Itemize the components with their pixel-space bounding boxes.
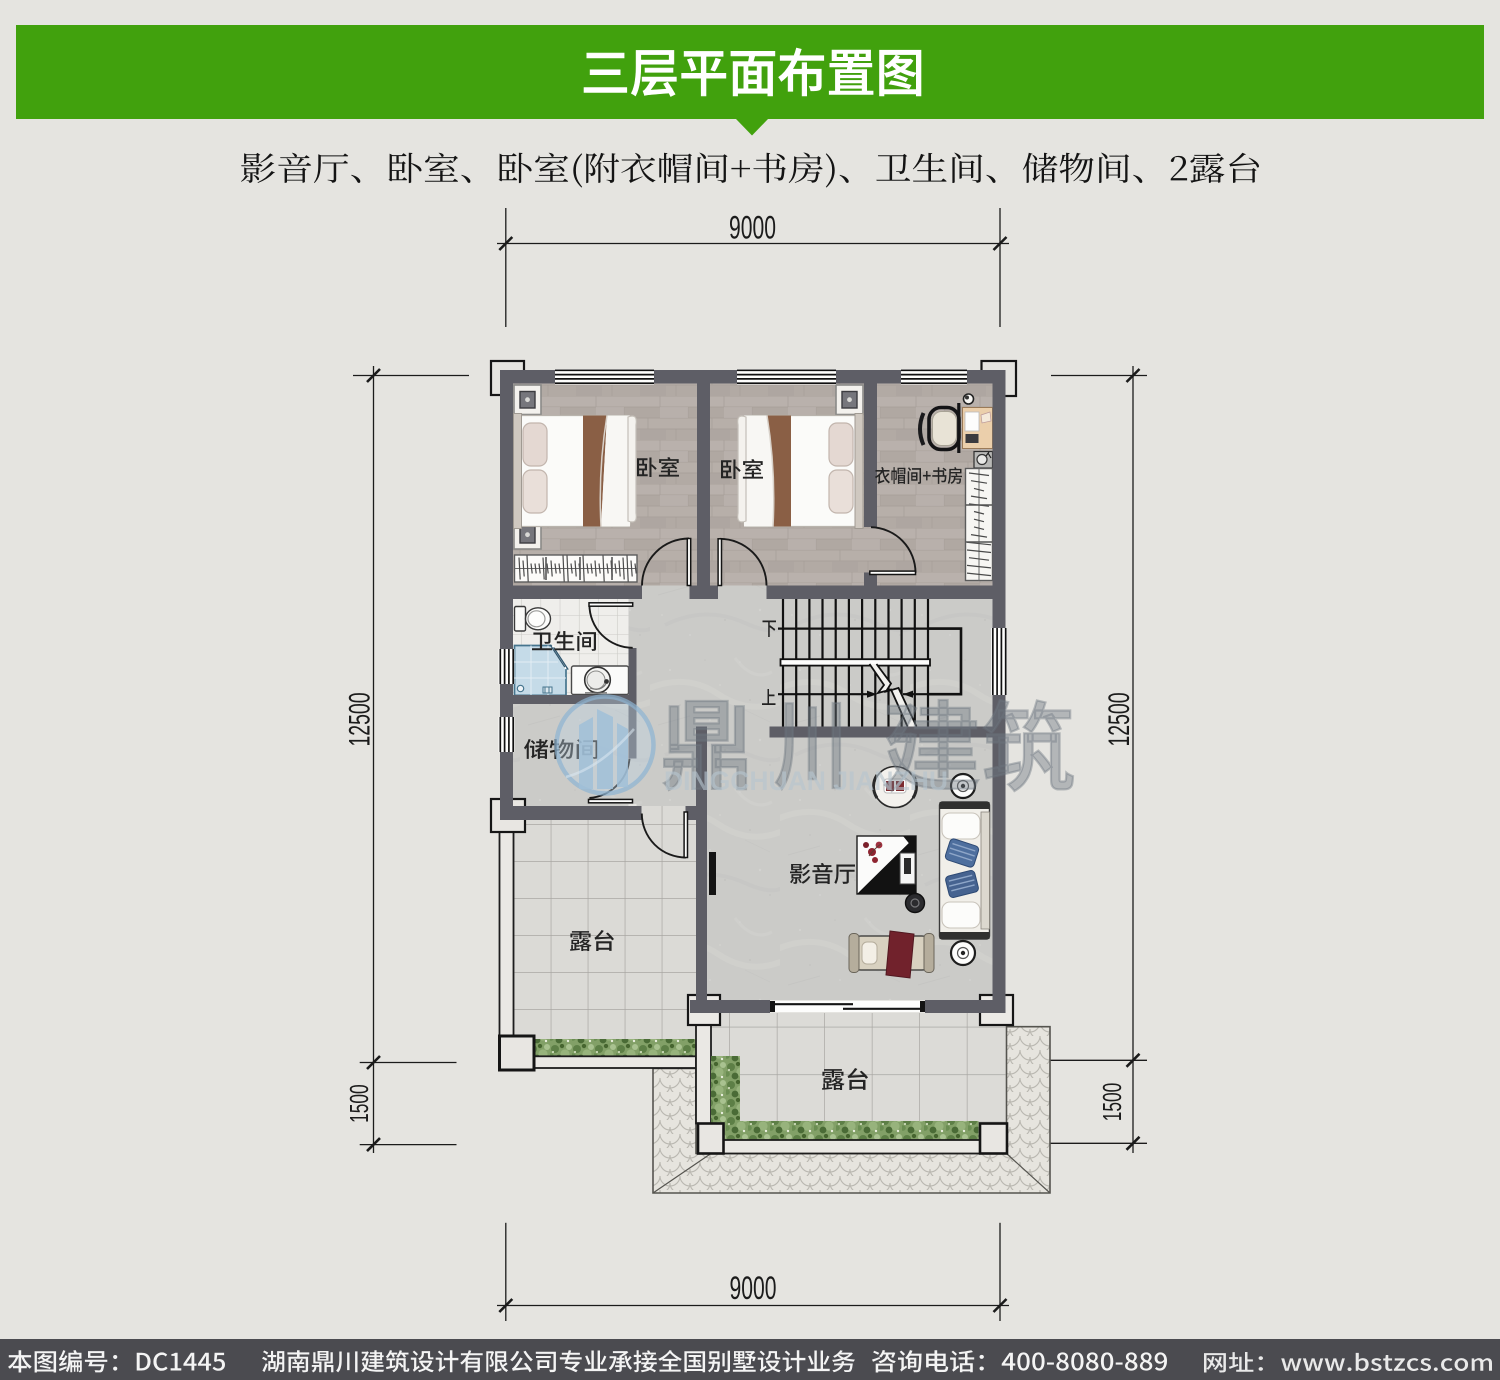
svg-text:12500: 12500: [344, 692, 377, 746]
svg-text:9000: 9000: [729, 209, 776, 246]
svg-text:1500: 1500: [1098, 1083, 1127, 1122]
svg-text:12500: 12500: [1103, 692, 1136, 746]
svg-text:1500: 1500: [345, 1084, 374, 1123]
svg-text:DINGCHUAN JIANZHU: DINGCHUAN JIANZHU: [664, 766, 948, 796]
svg-text:9000: 9000: [730, 1269, 777, 1306]
